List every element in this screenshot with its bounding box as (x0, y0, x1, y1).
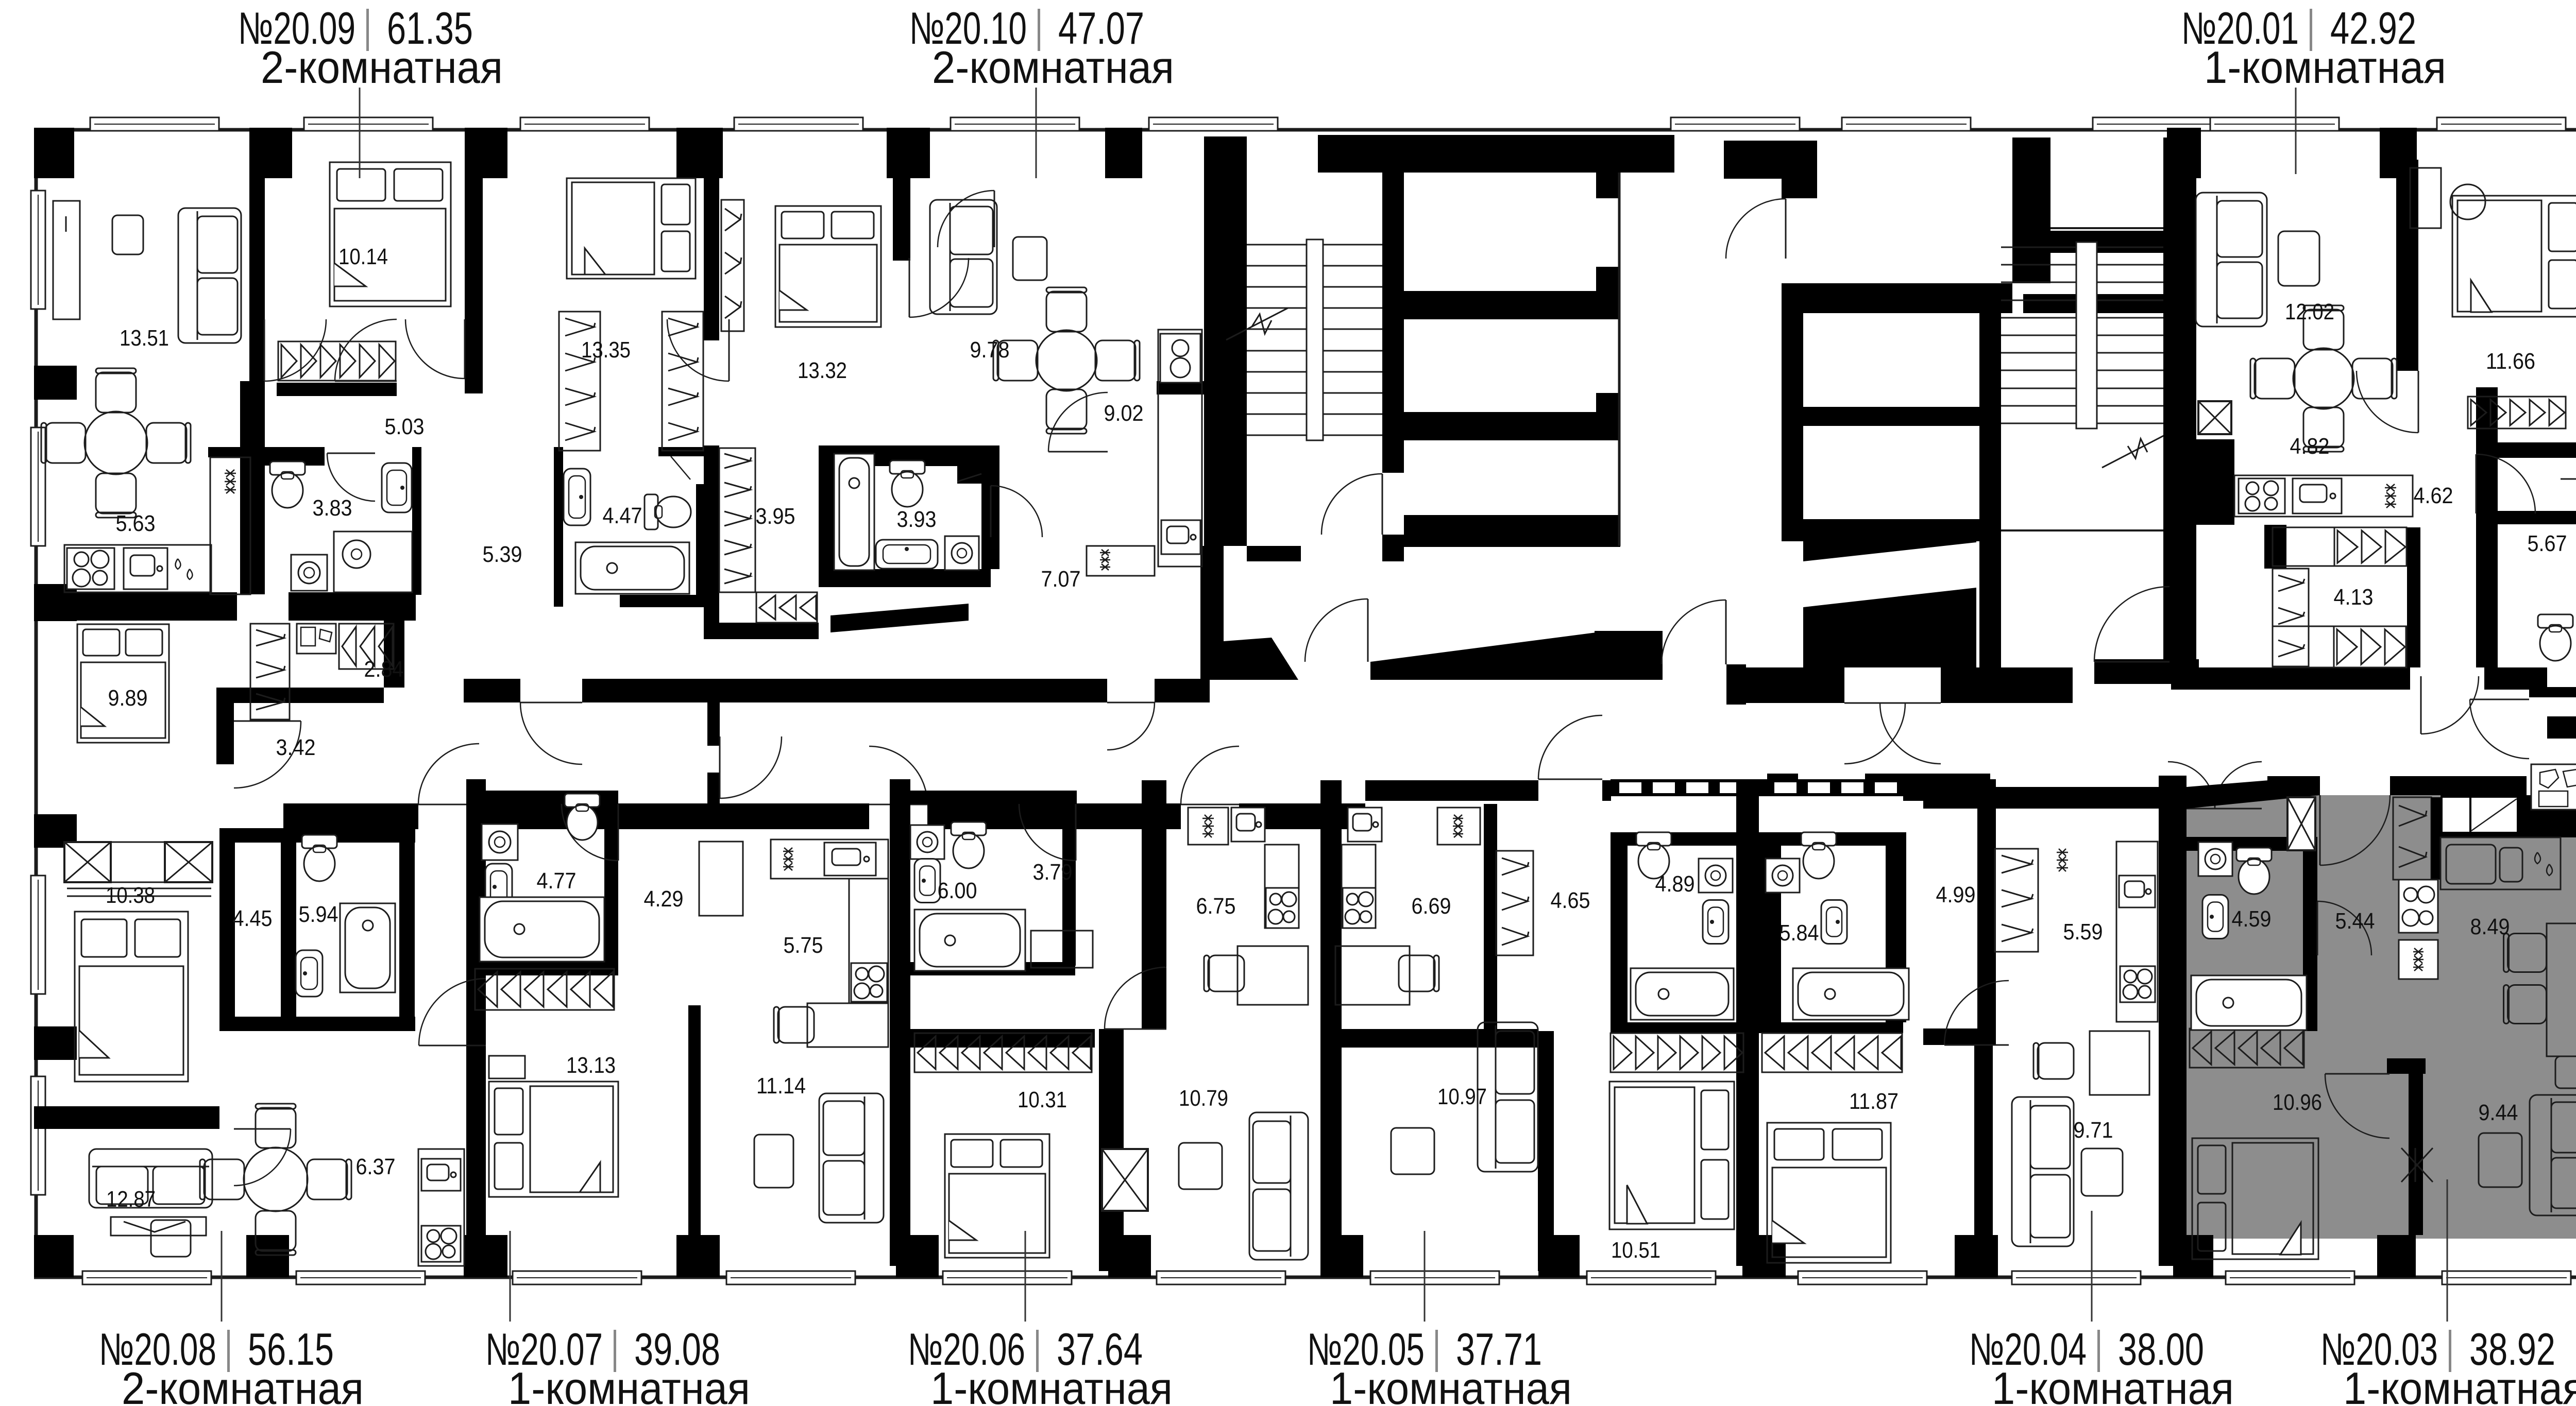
svg-text:3.93: 3.93 (897, 507, 937, 532)
svg-text:3.79: 3.79 (1033, 860, 1073, 885)
svg-text:4.77: 4.77 (537, 868, 577, 894)
svg-text:12.02: 12.02 (2285, 299, 2334, 324)
svg-text:13.13: 13.13 (566, 1053, 616, 1078)
svg-text:5.39: 5.39 (483, 542, 522, 567)
svg-text:4.59: 4.59 (2232, 906, 2272, 932)
svg-text:9.71: 9.71 (2074, 1118, 2113, 1143)
svg-text:13.35: 13.35 (581, 337, 631, 363)
svg-text:4.47: 4.47 (603, 503, 642, 528)
svg-text:11.87: 11.87 (1849, 1089, 1899, 1114)
svg-text:6.69: 6.69 (1412, 894, 1451, 919)
svg-text:3.83: 3.83 (313, 495, 352, 521)
svg-text:1-комнатная: 1-комнатная (508, 1363, 750, 1406)
svg-text:4.65: 4.65 (1551, 888, 1590, 913)
svg-text:11.66: 11.66 (2486, 349, 2535, 374)
svg-text:5.44: 5.44 (2335, 908, 2375, 934)
svg-text:10.79: 10.79 (1179, 1086, 1228, 1111)
svg-text:5.94: 5.94 (299, 902, 338, 927)
svg-text:2-комнатная: 2-комнатная (932, 42, 1174, 93)
svg-text:1-комнатная: 1-комнатная (1330, 1363, 1572, 1406)
svg-text:5.75: 5.75 (784, 933, 823, 958)
svg-text:8.49: 8.49 (2470, 914, 2510, 939)
svg-text:10.38: 10.38 (106, 883, 155, 908)
svg-text:4.99: 4.99 (1936, 882, 1976, 907)
svg-text:4.45: 4.45 (233, 906, 273, 931)
svg-text:1-комнатная: 1-комнатная (1992, 1363, 2234, 1406)
svg-text:13.51: 13.51 (120, 325, 169, 351)
svg-text:6.75: 6.75 (1196, 894, 1236, 919)
svg-text:9.02: 9.02 (1104, 401, 1144, 426)
svg-text:5.03: 5.03 (385, 414, 425, 439)
svg-text:10.97: 10.97 (1437, 1084, 1487, 1109)
svg-text:5.59: 5.59 (2063, 919, 2103, 945)
svg-text:10.31: 10.31 (1018, 1087, 1067, 1112)
svg-text:4.62: 4.62 (2414, 483, 2453, 508)
svg-text:10.14: 10.14 (338, 244, 388, 269)
svg-text:4.82: 4.82 (2290, 434, 2330, 459)
svg-text:6.00: 6.00 (938, 878, 977, 903)
svg-text:3.42: 3.42 (276, 735, 316, 760)
svg-text:5.84: 5.84 (1780, 920, 1819, 946)
svg-text:9.78: 9.78 (970, 337, 1010, 363)
svg-text:3.95: 3.95 (756, 504, 795, 529)
svg-text:2-комнатная: 2-комнатная (261, 42, 503, 93)
svg-text:12.87: 12.87 (106, 1187, 156, 1212)
svg-text:4.29: 4.29 (644, 886, 684, 912)
svg-text:5.63: 5.63 (116, 511, 156, 536)
svg-text:13.32: 13.32 (798, 358, 847, 383)
svg-text:1-комнатная: 1-комнатная (2204, 42, 2446, 93)
svg-text:1-комнатная: 1-комнатная (2343, 1363, 2576, 1406)
svg-text:2-комнатная: 2-комнатная (122, 1363, 364, 1406)
svg-text:9.44: 9.44 (2479, 1100, 2518, 1125)
svg-text:10.96: 10.96 (2273, 1090, 2322, 1115)
svg-text:4.13: 4.13 (2334, 585, 2374, 610)
svg-text:4.89: 4.89 (1655, 871, 1695, 897)
svg-text:11.14: 11.14 (756, 1073, 806, 1099)
svg-text:1-комнатная: 1-комнатная (930, 1363, 1173, 1406)
svg-text:9.89: 9.89 (108, 685, 148, 711)
svg-text:10.51: 10.51 (1611, 1238, 1660, 1263)
svg-text:6.37: 6.37 (356, 1154, 396, 1179)
svg-text:2.84: 2.84 (364, 657, 404, 682)
svg-text:5.67: 5.67 (2528, 531, 2567, 556)
svg-text:7.07: 7.07 (1041, 567, 1081, 592)
